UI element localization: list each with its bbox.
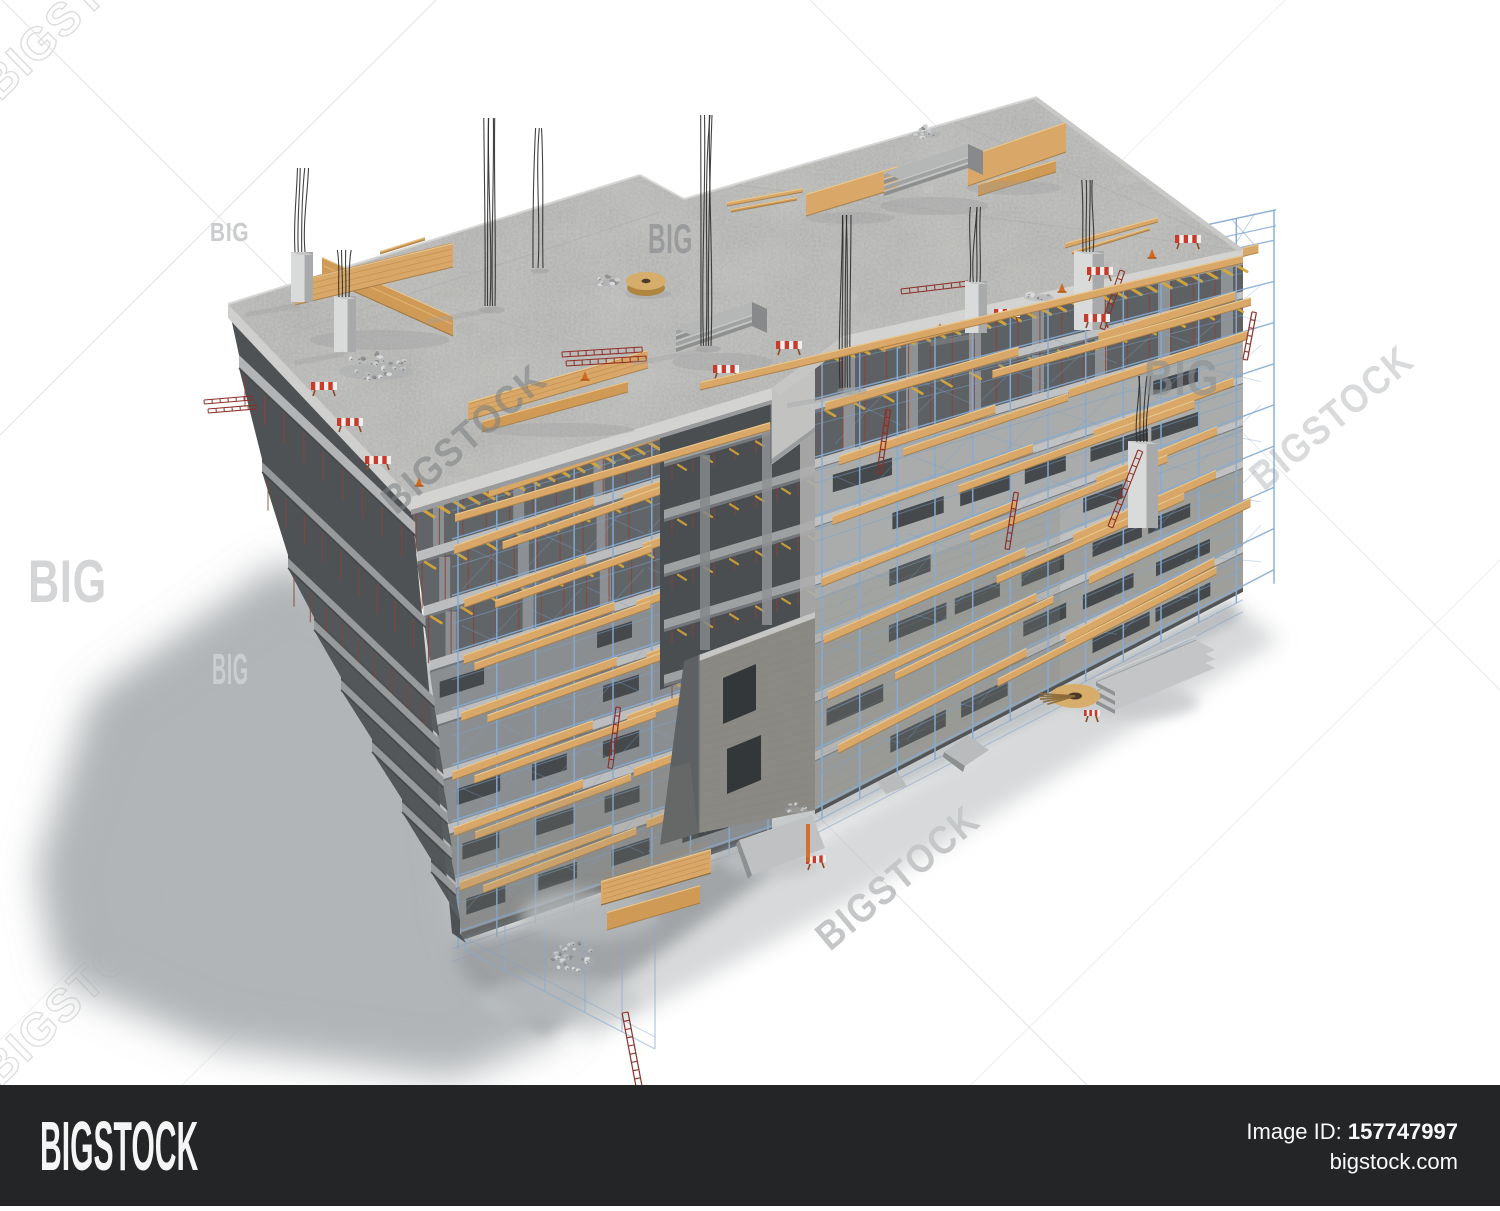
svg-text:BIG: BIG <box>210 218 249 247</box>
svg-text:BIG: BIG <box>28 549 107 616</box>
svg-text:BIGSTOCK: BIGSTOCK <box>40 1108 198 1186</box>
svg-text:BIG: BIG <box>212 645 249 694</box>
svg-text:BIG: BIG <box>648 216 693 262</box>
svg-text:Image ID: 157747997: Image ID: 157747997 <box>1246 1119 1458 1144</box>
svg-text:bigstock.com: bigstock.com <box>1330 1149 1458 1174</box>
svg-text:BIG: BIG <box>1144 350 1219 406</box>
